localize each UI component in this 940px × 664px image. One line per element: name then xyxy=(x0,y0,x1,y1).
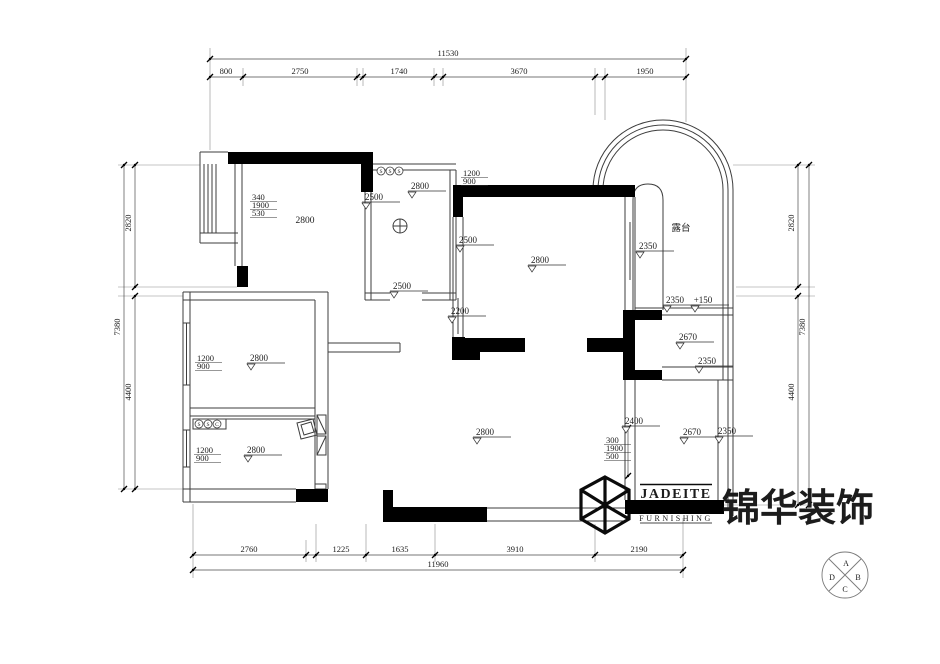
dim-tick-dot xyxy=(134,295,136,297)
level-triangle-icon xyxy=(528,266,536,272)
dim-tick-dot xyxy=(797,295,799,297)
cube-logo-icon xyxy=(581,477,629,533)
switch-symbol-glyph: S xyxy=(388,169,391,175)
ceiling-level-text: +150 xyxy=(694,295,713,305)
switch-symbol-icon: S xyxy=(204,420,212,428)
ceiling-level-text: 2500 xyxy=(459,235,478,245)
ceiling-level: 2500 xyxy=(456,235,494,252)
ceiling-level-text: 2800 xyxy=(476,427,495,437)
dim-tick-dot xyxy=(209,58,211,60)
level-triangle-icon xyxy=(695,367,703,373)
dim-tick-dot xyxy=(442,76,444,78)
level-triangle-icon xyxy=(676,343,684,349)
dim-tick-dot xyxy=(209,76,211,78)
dimension-label: 11960 xyxy=(428,559,449,569)
dimension-label: 3670 xyxy=(511,66,528,76)
dim-tick-dot xyxy=(433,76,435,78)
dim-tick-dot xyxy=(192,554,194,556)
dimension-label: 2190 xyxy=(631,544,648,554)
ceiling-level-text: 2350 xyxy=(639,241,658,251)
dimension-label: 800 xyxy=(220,66,233,76)
dim-tick-dot xyxy=(356,76,358,78)
level-triangle-icon xyxy=(390,292,398,298)
dim-tick-dot xyxy=(797,286,799,288)
switch-symbol-glyph: S xyxy=(397,169,400,175)
logo-sub-text: FURNISHING xyxy=(639,514,712,523)
stacked-dim-text: 900 xyxy=(196,453,209,463)
ceiling-level: 2400 xyxy=(622,416,660,433)
dim-tick-dot xyxy=(362,76,364,78)
ceiling-level: 2670 xyxy=(676,332,714,349)
dimension-label: 3910 xyxy=(507,544,524,554)
ceiling-level-text: 2670 xyxy=(683,427,702,437)
logo-chinese-text: 锦华装饰 xyxy=(722,488,874,530)
stacked-dim-text: 900 xyxy=(463,176,476,186)
dim-tick-dot xyxy=(305,554,307,556)
switch-symbol-glyph: C xyxy=(215,422,219,428)
ceiling-level: 2800 xyxy=(473,427,511,444)
ceiling-lamp-icon xyxy=(393,219,407,233)
dim-tick-dot xyxy=(192,569,194,571)
dimension-label: 1740 xyxy=(391,66,408,76)
dimension-label: 2820 xyxy=(123,215,133,232)
stacked-dim-text: 500 xyxy=(606,451,619,461)
ceiling-level-text: 2400 xyxy=(625,416,644,426)
dim-tick-dot xyxy=(242,76,244,78)
stacked-dim-text: 900 xyxy=(197,361,210,371)
switch-symbol-icon: S xyxy=(395,167,403,175)
level-triangle-icon xyxy=(244,456,252,462)
dim-tick-dot xyxy=(682,569,684,571)
ceiling-level-text: 2200 xyxy=(451,306,470,316)
dim-tick-dot xyxy=(682,554,684,556)
compass-letter: C xyxy=(842,585,847,594)
dimension-label: 4400 xyxy=(123,384,133,401)
dim-tick-dot xyxy=(134,286,136,288)
dim-chain xyxy=(207,74,689,80)
ceiling-level-text: 2500 xyxy=(393,281,412,291)
ceiling-level-text: 2670 xyxy=(679,332,698,342)
dim-tick-dot xyxy=(627,475,629,477)
walls xyxy=(228,152,662,522)
floor-plan-canvas: 1153080027501740367019502760122516353910… xyxy=(0,0,940,664)
dim-tick-dot xyxy=(434,554,436,556)
ceiling-level: 2800 xyxy=(247,353,285,370)
wall-over-logo xyxy=(625,500,724,514)
ceiling-level-text: 2500 xyxy=(365,192,384,202)
switch-symbol-glyph: S xyxy=(379,169,382,175)
room-label: 露台 xyxy=(671,222,690,234)
compass-letter: A xyxy=(843,559,849,568)
dimension-label: 1635 xyxy=(392,544,409,554)
switch-symbol-rows: SSSSSC xyxy=(195,167,403,428)
dimension-label: 2750 xyxy=(292,66,309,76)
ceiling-level: 2350 xyxy=(715,426,753,443)
dim-tick-dot xyxy=(685,58,687,60)
compass-letter: B xyxy=(855,573,860,582)
dimension-label: 4400 xyxy=(786,384,796,401)
dim-tick-dot xyxy=(808,164,810,166)
ceiling-level: 2800 xyxy=(408,181,446,198)
dimension-label: 2820 xyxy=(786,215,796,232)
ceiling-level: 2500 xyxy=(390,281,428,298)
dim-tick-dot xyxy=(365,554,367,556)
ceiling-level-text: 2800 xyxy=(247,445,266,455)
dimension-label: 2760 xyxy=(241,544,258,554)
floor-plan-drawing: 1153080027501740367019502760122516353910… xyxy=(0,0,940,664)
ceiling-level-text: 2800 xyxy=(250,353,269,363)
switch-symbol-glyph: S xyxy=(206,422,209,428)
level-triangle-icon xyxy=(473,438,481,444)
level-triangle-icon xyxy=(622,427,630,433)
dimension-label: 11530 xyxy=(438,48,459,58)
ceiling-level-text: 2800 xyxy=(531,255,550,265)
level-triangle-icon xyxy=(680,438,688,444)
dim-tick-dot xyxy=(594,554,596,556)
level-triangle-icon xyxy=(663,306,671,312)
dimension-label: 7380 xyxy=(797,319,807,336)
ceiling-level: 2670 xyxy=(680,427,718,444)
ceiling-level: 2200 xyxy=(448,306,486,323)
dimension-label: 7380 xyxy=(112,319,122,336)
level-triangle-icon xyxy=(715,437,723,443)
ceiling-level: 2500 xyxy=(362,192,400,209)
dimension-label: 1225 xyxy=(333,544,350,554)
switch-symbol-icon: C xyxy=(213,420,221,428)
compass-letter: D xyxy=(829,573,835,582)
dim-tick-dot xyxy=(123,164,125,166)
room-labels: 2800露台 xyxy=(296,216,691,234)
dim-tick-dot xyxy=(685,76,687,78)
switch-symbol-icon: S xyxy=(386,167,394,175)
level-triangle-icon xyxy=(362,203,370,209)
level-triangle-icon xyxy=(636,252,644,258)
ceiling-level: 2800 xyxy=(528,255,566,272)
dimension-label: 1950 xyxy=(637,66,654,76)
dim-tick-dot xyxy=(134,488,136,490)
level-triangle-icon xyxy=(691,306,699,312)
stacked-dim-text: 530 xyxy=(252,208,265,218)
switch-symbol-glyph: S xyxy=(197,422,200,428)
ceiling-level-text: 2800 xyxy=(411,181,430,191)
dim-tick-dot xyxy=(123,488,125,490)
ceiling-level-text: 2350 xyxy=(666,295,685,305)
ceiling-level-text: 2350 xyxy=(698,356,717,366)
dim-tick-dot xyxy=(134,164,136,166)
dim-tick-dot xyxy=(594,76,596,78)
dim-tick-dot xyxy=(797,164,799,166)
ceiling-level: 2350 xyxy=(695,356,733,373)
ceiling-level-text: 2350 xyxy=(718,426,737,436)
level-triangle-icon xyxy=(408,192,416,198)
ceiling-level: 2350 xyxy=(636,241,674,258)
switch-symbol-icon: S xyxy=(377,167,385,175)
ceiling-level: 2800 xyxy=(244,445,282,462)
logo-brand-text: JADEITE xyxy=(640,487,711,502)
dim-tick-dot xyxy=(604,76,606,78)
room-label: 2800 xyxy=(296,216,315,226)
dim-tick-dot xyxy=(315,554,317,556)
switch-symbol-icon: S xyxy=(195,420,203,428)
dim-chain xyxy=(190,552,686,558)
level-triangle-icon xyxy=(247,364,255,370)
level-triangle-icon xyxy=(448,317,456,323)
